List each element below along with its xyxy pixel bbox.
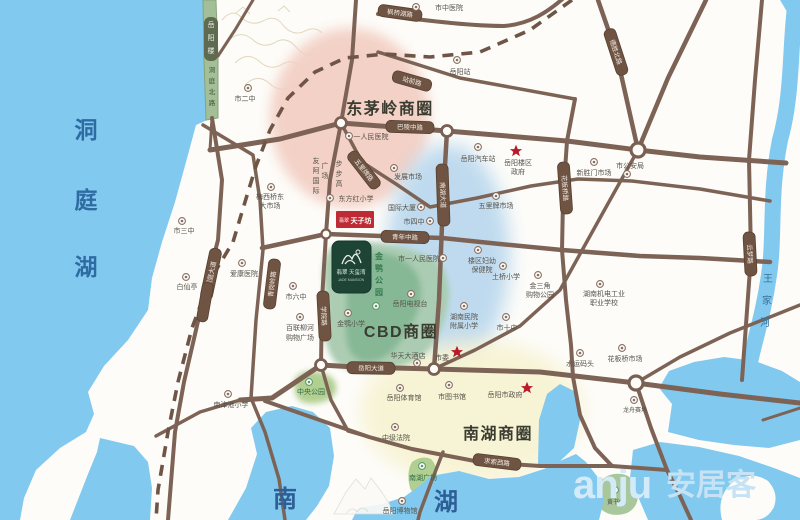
svg-text:湖: 湖	[434, 489, 458, 516]
svg-text:楼: 楼	[208, 46, 215, 55]
svg-text:鹗: 鹗	[375, 263, 383, 273]
svg-text:国际大厦: 国际大厦	[388, 203, 416, 212]
svg-text:岳阳楼区: 岳阳楼区	[504, 158, 532, 167]
svg-text:路: 路	[209, 98, 216, 107]
svg-text:购物公园: 购物公园	[526, 290, 554, 299]
svg-text:步: 步	[336, 170, 343, 178]
svg-text:庭: 庭	[209, 76, 216, 85]
svg-text:岳阳电视台: 岳阳电视台	[393, 299, 428, 308]
svg-text:岳阳汽车站: 岳阳汽车站	[461, 154, 496, 163]
svg-text:湖南机电工业: 湖南机电工业	[583, 289, 625, 298]
svg-text:市三中: 市三中	[174, 226, 195, 235]
svg-text:土桥小学: 土桥小学	[492, 272, 520, 281]
svg-text:广: 广	[322, 161, 329, 170]
svg-text:湖: 湖	[75, 254, 98, 280]
svg-text:南津港小学: 南津港小学	[214, 400, 249, 409]
svg-text:附属小学: 附属小学	[450, 321, 478, 330]
svg-text:岳: 岳	[208, 21, 215, 29]
svg-text:发展市场: 发展市场	[394, 172, 422, 181]
svg-text:庭: 庭	[75, 187, 98, 213]
svg-text:东方红小学: 东方红小学	[339, 194, 374, 203]
svg-text:湖南民院: 湖南民院	[450, 312, 478, 321]
svg-text:白仙亭: 白仙亭	[177, 282, 198, 291]
svg-text:国: 国	[313, 177, 320, 185]
svg-text:华天大酒店: 华天大酒店	[391, 351, 426, 360]
svg-text:市一人民医院: 市一人民医院	[398, 254, 440, 263]
svg-text:友: 友	[313, 156, 320, 165]
svg-text:洞: 洞	[209, 65, 216, 74]
svg-text:岳阳站: 岳阳站	[450, 67, 471, 76]
svg-text:岳阳体育馆: 岳阳体育馆	[387, 393, 422, 402]
svg-text:龙舟赛场: 龙舟赛场	[623, 406, 647, 414]
svg-text:南湖广场: 南湖广场	[409, 473, 437, 482]
svg-text:河: 河	[760, 317, 770, 329]
svg-text:家: 家	[762, 294, 772, 307]
svg-text:水运码头: 水运码头	[566, 359, 594, 368]
svg-text:岳阳博物馆: 岳阳博物馆	[383, 506, 418, 515]
svg-text:大市场: 大市场	[260, 201, 281, 210]
svg-text:百联柳河: 百联柳河	[286, 323, 314, 332]
svg-text:公: 公	[375, 276, 383, 285]
svg-text:花板桥市场: 花板桥市场	[608, 354, 643, 363]
svg-text:市二中: 市二中	[235, 94, 256, 103]
svg-text:金三角: 金三角	[530, 281, 551, 290]
svg-text:市六中: 市六中	[286, 292, 307, 301]
svg-text:岳阳大道: 岳阳大道	[358, 363, 385, 372]
svg-text:市四中: 市四中	[404, 217, 425, 226]
svg-text:anju: anju	[573, 463, 651, 507]
svg-text:南湖商圈: 南湖商圈	[463, 424, 533, 443]
svg-text:市十中: 市十中	[497, 323, 518, 332]
svg-text:北: 北	[209, 88, 216, 96]
svg-text:南: 南	[273, 486, 297, 513]
svg-text:安居客: 安居客	[666, 468, 756, 502]
svg-text:场: 场	[322, 171, 329, 180]
svg-text:市公安局: 市公安局	[616, 161, 644, 170]
svg-text:中央公园: 中央公园	[297, 387, 325, 396]
svg-text:天子坊: 天子坊	[351, 216, 372, 225]
svg-text:岳阳市政府: 岳阳市政府	[488, 390, 523, 399]
svg-text:步: 步	[336, 160, 343, 168]
svg-text:翡翠: 翡翠	[339, 217, 349, 224]
svg-text:JADE MANSION: JADE MANSION	[338, 278, 365, 282]
svg-text:梅西桥东: 梅西桥东	[256, 192, 284, 201]
svg-text:职业学校: 职业学校	[590, 298, 618, 307]
svg-text:王: 王	[763, 274, 773, 285]
svg-text:市委: 市委	[435, 353, 449, 362]
svg-text:翡翠 天玺湾: 翡翠 天玺湾	[336, 268, 366, 276]
svg-text:购物广场: 购物广场	[286, 333, 314, 342]
svg-text:阿: 阿	[313, 166, 320, 175]
svg-text:园: 园	[375, 288, 383, 297]
svg-text:高: 高	[336, 179, 343, 188]
svg-text:楼区妇幼: 楼区妇幼	[468, 256, 496, 265]
svg-text:新胜门市场: 新胜门市场	[577, 168, 612, 177]
svg-text:一人民医院: 一人民医院	[354, 132, 389, 141]
svg-text:保健院: 保健院	[472, 265, 493, 274]
svg-text:际: 际	[313, 186, 320, 195]
svg-text:金鹗小学: 金鹗小学	[337, 319, 365, 328]
svg-text:市中医院: 市中医院	[435, 3, 463, 12]
svg-text:阳: 阳	[208, 33, 215, 42]
svg-text:市图书馆: 市图书馆	[438, 392, 466, 401]
svg-text:东茅岭商圈: 东茅岭商圈	[346, 99, 434, 118]
svg-text:五里牌市场: 五里牌市场	[479, 201, 514, 210]
svg-text:中级法院: 中级法院	[382, 433, 410, 442]
svg-text:CBD商圈: CBD商圈	[364, 322, 438, 341]
svg-text:金: 金	[374, 251, 384, 261]
svg-text:洞: 洞	[75, 117, 98, 143]
svg-text:爱康医院: 爱康医院	[230, 269, 258, 278]
svg-text:政府: 政府	[511, 167, 525, 176]
